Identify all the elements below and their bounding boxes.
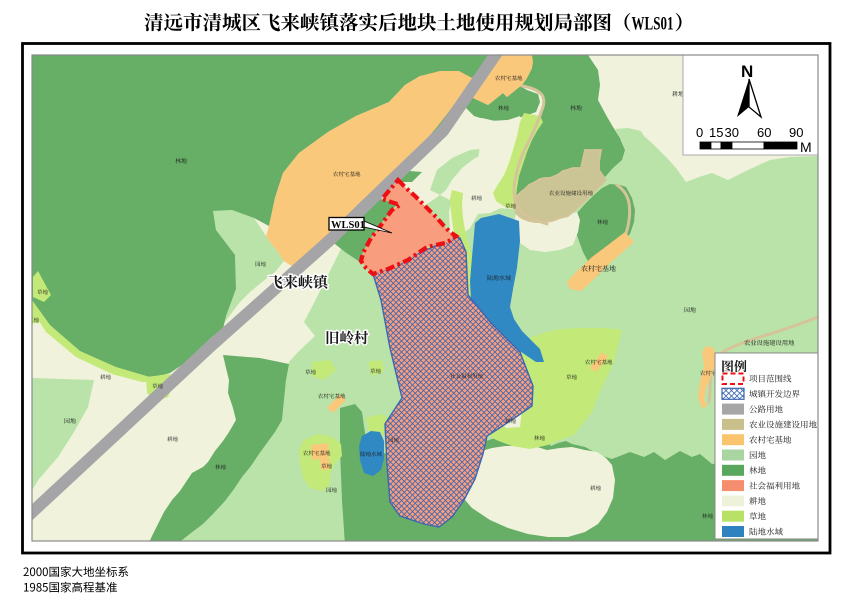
svg-text:N: N xyxy=(741,62,753,81)
svg-text:15: 15 xyxy=(709,125,723,140)
svg-text:60: 60 xyxy=(757,125,771,140)
svg-text:90: 90 xyxy=(789,125,803,140)
svg-text:WLS01: WLS01 xyxy=(331,220,365,231)
svg-text:0: 0 xyxy=(696,125,703,140)
svg-text:M: M xyxy=(800,139,812,155)
svg-text:WLS01: WLS01 xyxy=(632,14,674,35)
svg-text:30: 30 xyxy=(725,125,739,140)
